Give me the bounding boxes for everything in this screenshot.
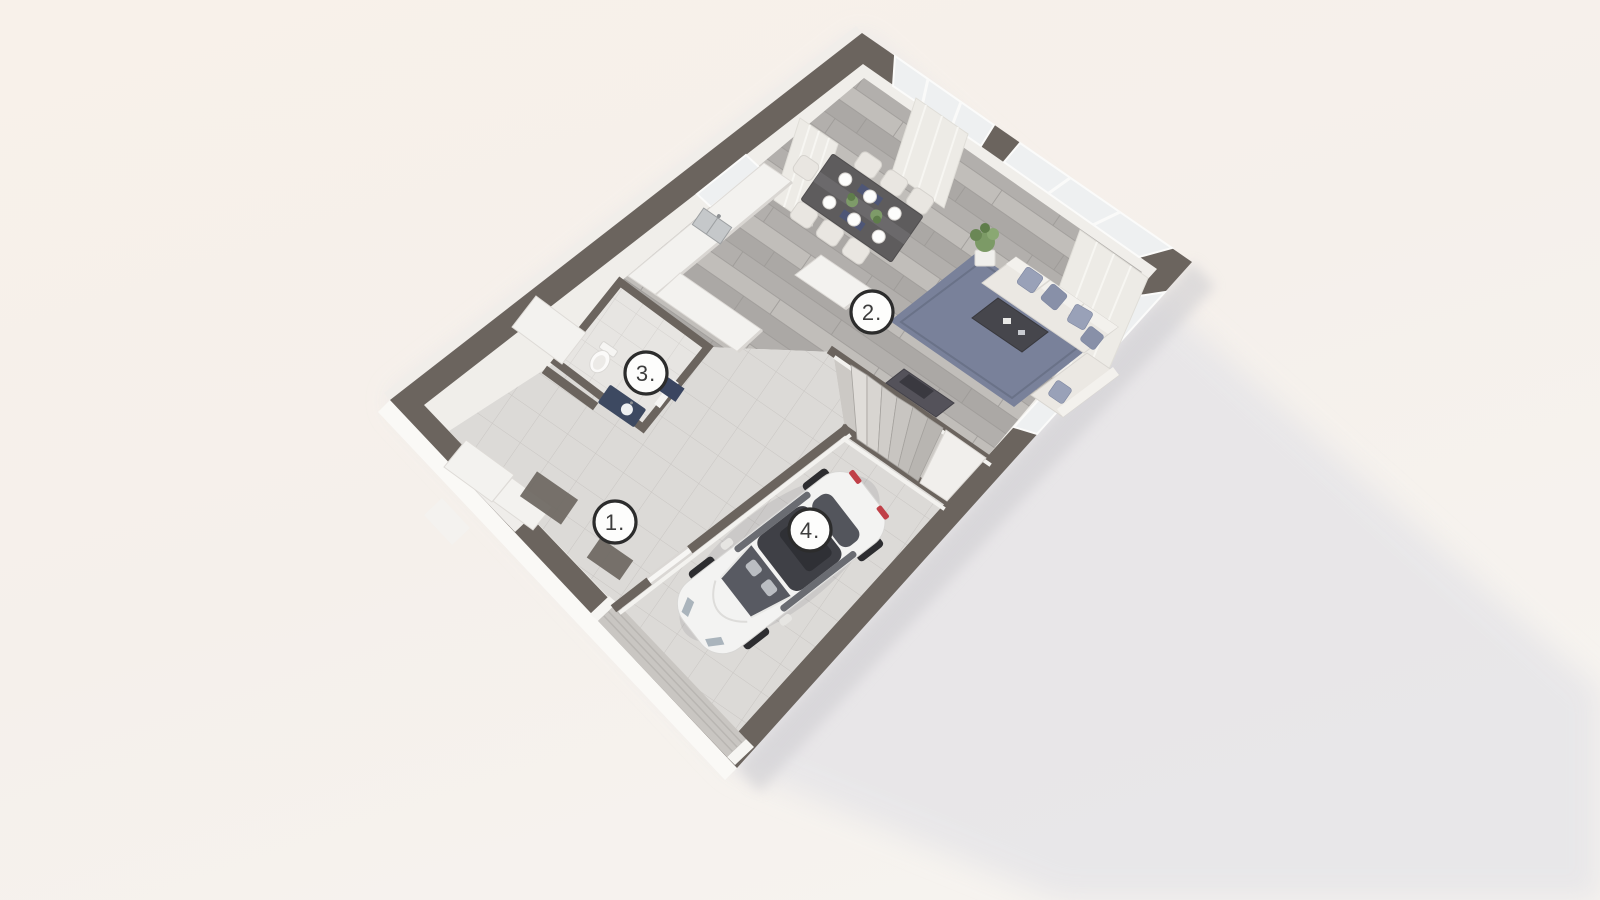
floorplan-render: 1. 2. 3. 4. <box>0 0 1600 900</box>
table-decor <box>1018 330 1025 335</box>
room-marker-living: 2. <box>851 291 893 333</box>
room-marker-hallway: 1. <box>594 501 636 543</box>
marker-label: 4. <box>800 518 820 543</box>
marker-label: 1. <box>605 510 625 535</box>
room-marker-garage: 4. <box>789 509 831 551</box>
table-decor <box>1003 318 1011 324</box>
marker-label: 3. <box>636 361 656 386</box>
room-marker-bathroom: 3. <box>625 352 667 394</box>
marker-label: 2. <box>862 300 882 325</box>
